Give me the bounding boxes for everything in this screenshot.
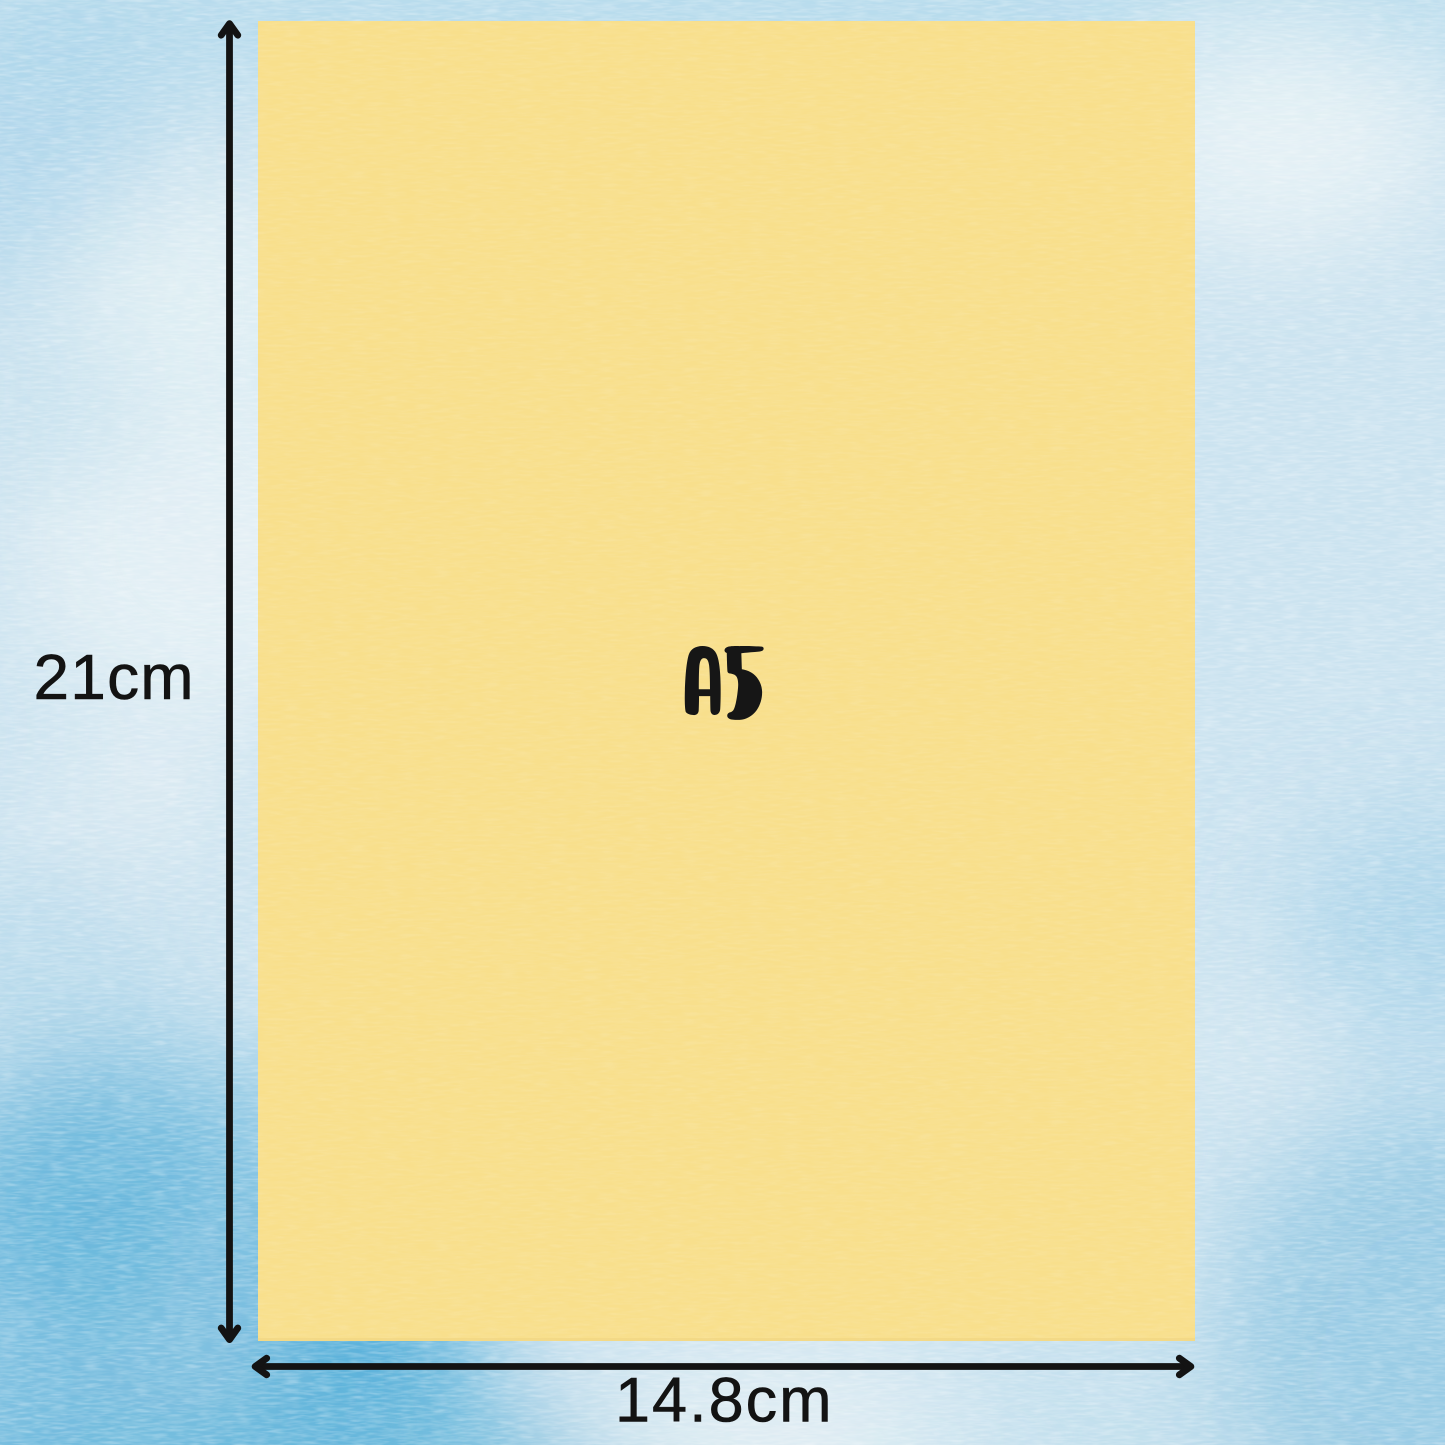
svg-text:14.8cm: 14.8cm [615, 1366, 834, 1436]
svg-text:21cm: 21cm [34, 641, 195, 713]
